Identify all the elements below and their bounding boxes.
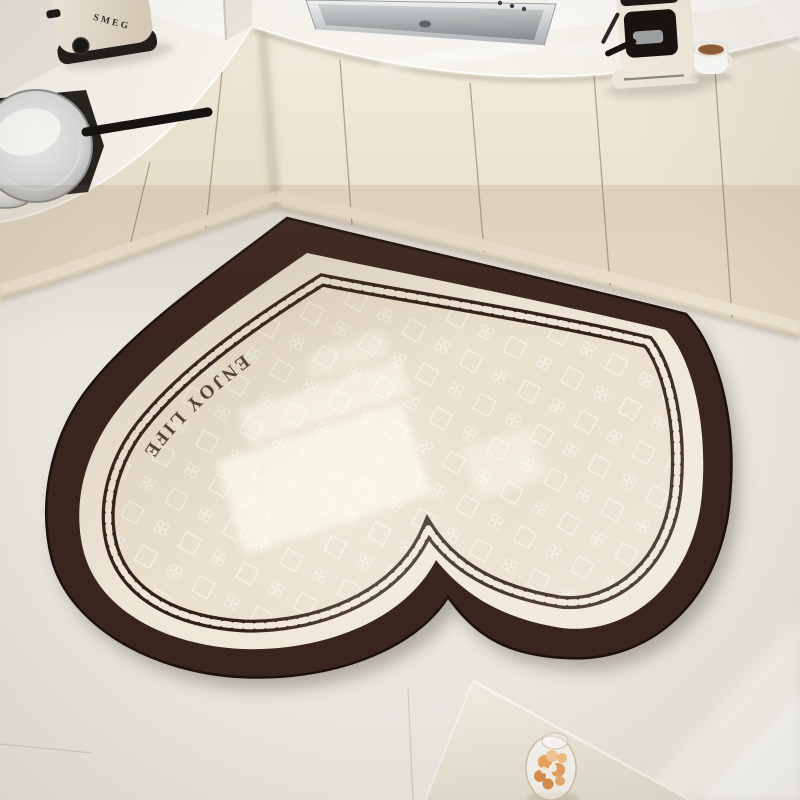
kitchen-product-photo: SMEG ENJOY LIFE — [0, 0, 800, 800]
kitchen-scene-svg: SMEG ENJOY LIFE — [0, 0, 800, 800]
scene-vignette — [0, 0, 800, 800]
